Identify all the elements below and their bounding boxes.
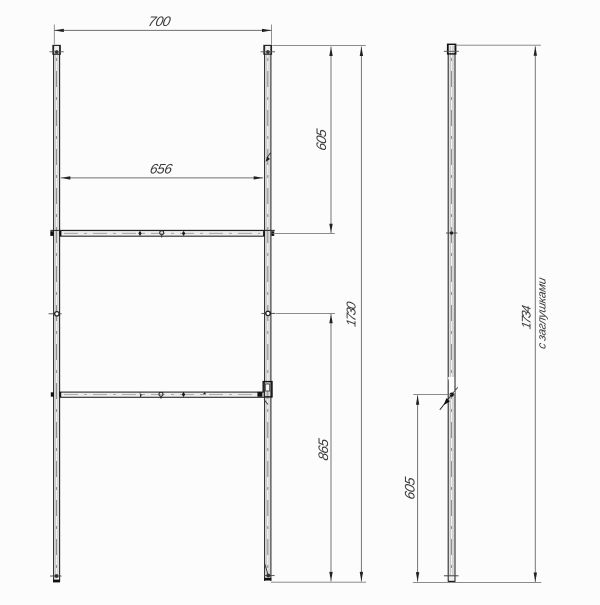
- svg-text:605: 605: [313, 127, 329, 152]
- svg-text:с заглушками: с заглушками: [535, 276, 548, 350]
- svg-text:656: 656: [149, 161, 174, 177]
- svg-text:700: 700: [147, 13, 172, 29]
- svg-text:605: 605: [402, 475, 418, 500]
- svg-text:865: 865: [315, 437, 331, 462]
- svg-text:1734: 1734: [519, 304, 534, 330]
